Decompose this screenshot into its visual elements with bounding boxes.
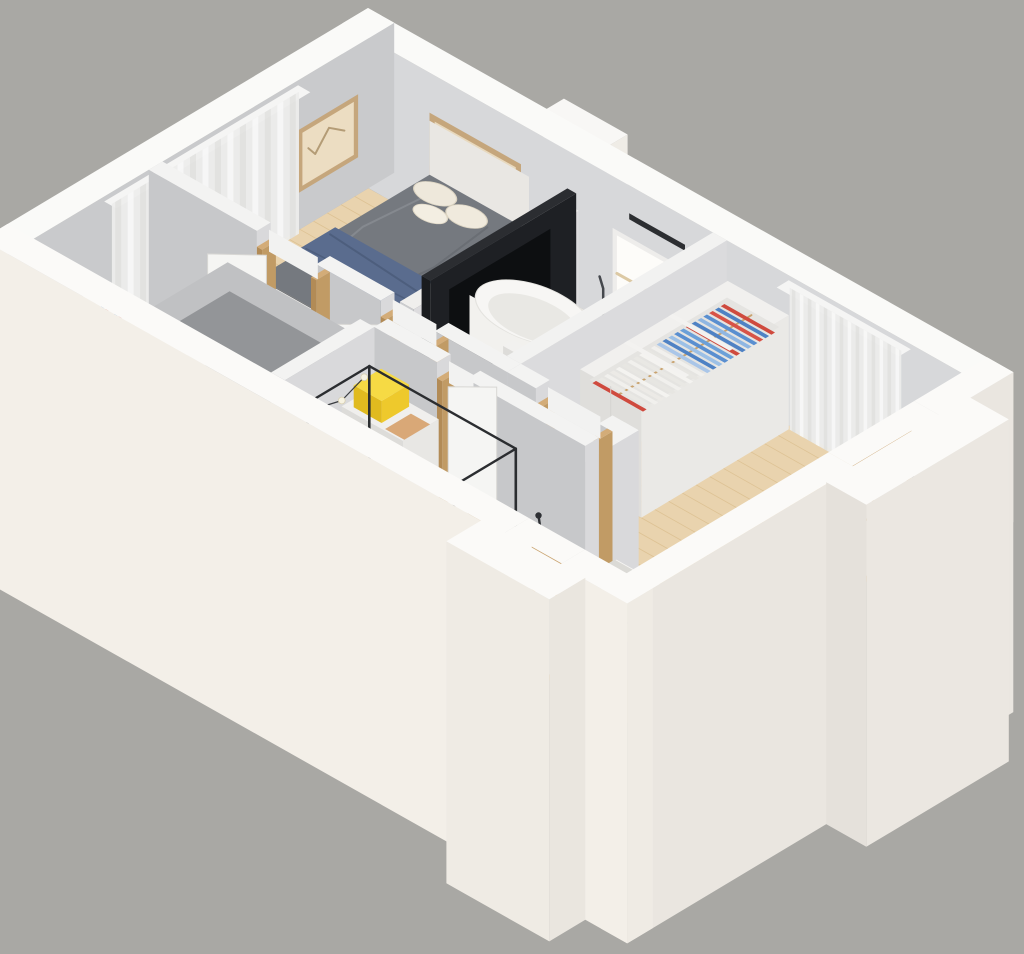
string-lights [361, 374, 368, 381]
balcony-east-front [826, 482, 866, 847]
curtain-right-room-fold [792, 289, 796, 433]
balcony-south-front [446, 541, 549, 941]
curtain-bedroom-fold [277, 101, 283, 247]
curtain-right-room-fold [840, 316, 844, 460]
curtain-right-room-fold [832, 312, 836, 456]
curtain-right-room-fold [824, 307, 828, 451]
balcony-south-side [549, 578, 585, 942]
curtain-bedroom-fold [290, 94, 296, 240]
string-lights [338, 397, 345, 404]
curtain-right-room-fold [800, 294, 804, 438]
floor-plan-figure [0, 0, 1024, 954]
wall-sw-right-side [627, 588, 653, 943]
door-frame-side [599, 431, 613, 573]
curtain-right-room-fold [816, 303, 820, 447]
floorplan-svg [0, 0, 1024, 954]
kids-lamp-head [535, 512, 541, 518]
curtain-right-room-fold [808, 298, 812, 442]
